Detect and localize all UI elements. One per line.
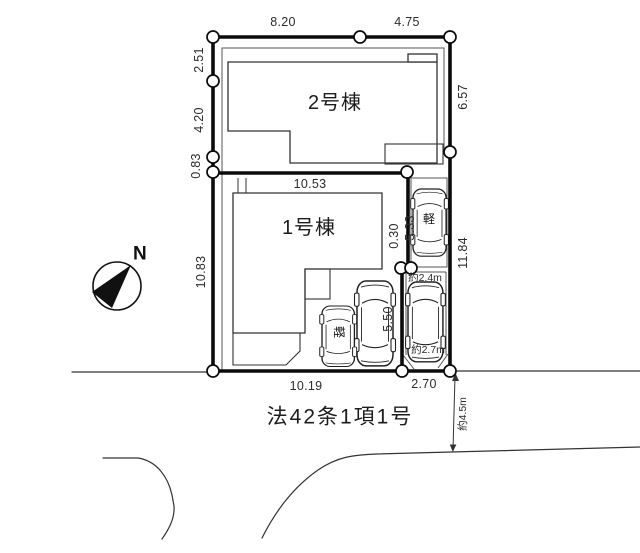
- dim-right-lower: 11.84: [457, 237, 470, 269]
- dim-parking-middle-length: 5.50: [382, 306, 395, 332]
- dim-left-1: 2.51: [193, 47, 206, 73]
- dim-bottom-right: 2.70: [411, 378, 437, 391]
- road-lines: [72, 371, 640, 539]
- dim-parking-width-top: 約2.4m: [408, 273, 442, 284]
- kei-car-label-bottom: 軽: [333, 326, 345, 338]
- site-plan: 8.20 4.75 2.51 4.20 0.83 10.83 6.57 11.8…: [0, 0, 640, 553]
- dim-bottom-left: 10.19: [290, 380, 323, 393]
- dim-parking-right-length: 5.33: [404, 215, 417, 241]
- dim-top-left: 8.20: [270, 16, 296, 29]
- road-width-label: 約4.5m: [458, 397, 469, 431]
- kei-car-label-right: 軽: [423, 213, 435, 225]
- dim-right-upper: 6.57: [457, 84, 470, 110]
- dim-left-3: 0.83: [190, 153, 203, 179]
- site-plan-drawing: [0, 0, 640, 553]
- building-1-label: 1号棟: [282, 218, 336, 238]
- road-type-label: 法42条1項1号: [267, 407, 414, 428]
- building-2-label: 2号棟: [308, 93, 362, 113]
- dim-inner-horizontal: 10.53: [294, 178, 327, 191]
- dim-left-2: 4.20: [193, 107, 206, 133]
- compass: [92, 262, 141, 310]
- dim-building-gap: 0.30: [388, 223, 401, 249]
- compass-north-label: N: [133, 245, 147, 264]
- dim-left-4: 10.83: [195, 256, 208, 289]
- dim-parking-width-bottom: 約2.7m: [411, 345, 445, 356]
- dim-top-right: 4.75: [394, 16, 420, 29]
